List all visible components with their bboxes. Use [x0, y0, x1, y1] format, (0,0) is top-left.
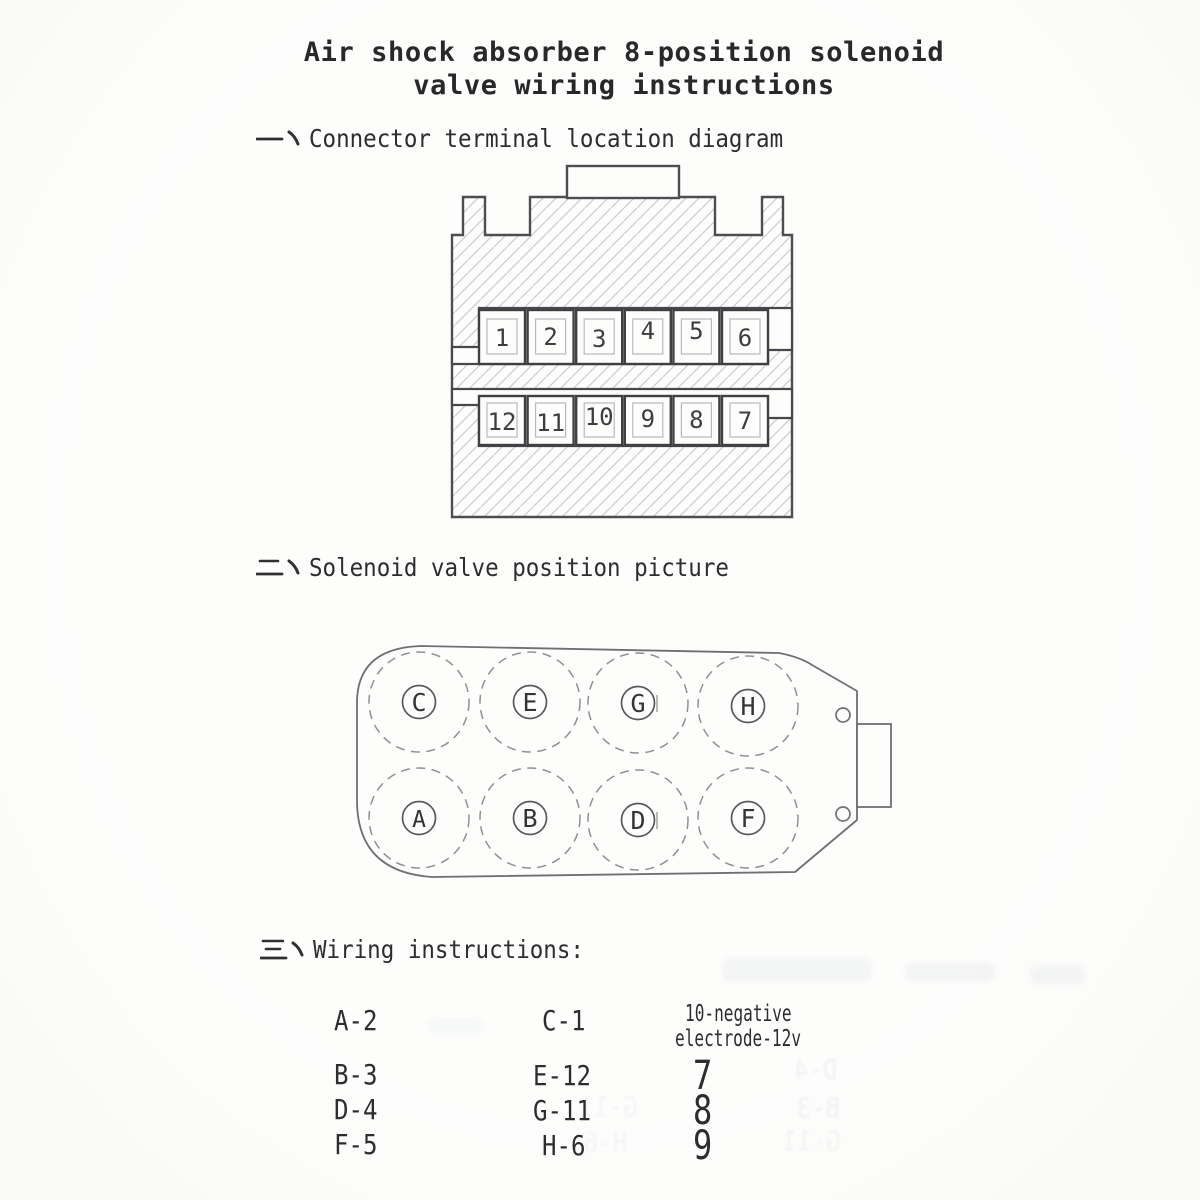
valve-label-E: E	[522, 688, 537, 717]
wiring-note-line-1: 10-negative	[685, 1003, 792, 1026]
terminal-box-2: 2	[528, 310, 574, 364]
bleed-through-smudge	[722, 958, 872, 982]
wiring-terminal-9: 9	[693, 1126, 712, 1166]
wiring-pair-F5: F-5	[334, 1131, 377, 1159]
terminal-label-3: 3	[592, 325, 606, 353]
valve-label-G: G	[630, 689, 645, 718]
solenoid-valve-position-picture: C E G H A	[350, 625, 900, 890]
section-one-label: Connector terminal location diagram	[309, 124, 783, 153]
bleed-through-text: D-4	[794, 1056, 837, 1084]
section-one-heading: Connector terminal location diagram	[256, 124, 836, 153]
connector-top-tab	[567, 166, 679, 198]
valve-label-C: C	[411, 688, 426, 717]
title-line-2: valve wiring instructions	[24, 69, 1200, 102]
section-marker-three	[260, 936, 306, 963]
bleed-through-text: G-11	[580, 1093, 638, 1121]
section-marker-one	[256, 125, 302, 152]
wiring-pair-E12: E-12	[533, 1062, 591, 1090]
valve-label-A: A	[412, 807, 426, 833]
terminal-box-10: 10	[576, 396, 622, 445]
section-three-label: Wiring instructions:	[313, 935, 584, 964]
scanned-instruction-sheet: Air shock absorber 8-position solenoid v…	[0, 0, 1200, 1200]
wiring-pair-B3: B-3	[334, 1061, 377, 1089]
terminal-box-9: 9	[625, 396, 671, 445]
terminal-label-7: 7	[738, 407, 752, 435]
title-line-1: Air shock absorber 8-position solenoid	[24, 36, 1200, 69]
terminal-box-11: 11	[528, 396, 574, 445]
valve-label-H: H	[740, 692, 755, 721]
wiring-pair-H6: H-6	[542, 1132, 585, 1160]
section-marker-two	[256, 554, 302, 581]
document-title: Air shock absorber 8-position solenoid v…	[24, 36, 1200, 102]
terminal-label-5: 5	[689, 317, 703, 345]
valve-label-D: D	[630, 806, 645, 835]
wiring-pair-A2: A-2	[334, 1007, 377, 1035]
terminal-label-4: 4	[641, 317, 655, 345]
bleed-through-text: H-6	[584, 1129, 627, 1157]
valve-label-F: F	[740, 804, 755, 833]
terminal-box-7: 7	[722, 396, 768, 445]
terminal-label-9: 9	[641, 405, 655, 433]
terminal-label-2: 2	[543, 323, 557, 351]
section-two-label: Solenoid valve position picture	[309, 553, 729, 582]
bleed-through-smudge	[1030, 966, 1085, 984]
terminal-label-6: 6	[738, 324, 752, 352]
terminal-label-12: 12	[488, 408, 517, 436]
connector-terminal-diagram: 1 2 3 4 5	[440, 160, 800, 530]
bleed-through-smudge	[428, 1018, 483, 1034]
terminal-box-6: 6	[722, 310, 768, 364]
terminal-label-11: 11	[536, 409, 565, 437]
wiring-pair-D4: D-4	[334, 1096, 377, 1124]
terminal-box-8: 8	[673, 396, 719, 445]
section-two-heading: Solenoid valve position picture	[256, 553, 776, 582]
terminal-box-4: 4	[625, 310, 671, 364]
solenoid-body	[357, 646, 857, 877]
terminal-box-12: 12	[479, 396, 525, 445]
bleed-through-text: B-3	[797, 1094, 840, 1122]
wiring-terminal-8: 8	[693, 1091, 712, 1131]
terminal-label-8: 8	[689, 406, 703, 434]
solenoid-connector-tab	[857, 724, 891, 807]
terminal-box-3: 3	[576, 310, 622, 364]
wiring-note-line-2: electrode-12v	[675, 1028, 801, 1051]
terminal-box-5: 5	[673, 310, 719, 364]
bleed-through-text: G-11	[783, 1127, 841, 1155]
valve-label-B: B	[522, 804, 537, 833]
wiring-pair-C1: C-1	[542, 1007, 585, 1035]
section-three-heading: Wiring instructions:	[260, 935, 614, 964]
terminal-label-1: 1	[495, 324, 509, 352]
wiring-terminal-7: 7	[693, 1056, 712, 1096]
terminal-label-10: 10	[585, 403, 614, 431]
terminal-box-1: 1	[479, 310, 525, 364]
bleed-through-smudge	[905, 962, 995, 982]
